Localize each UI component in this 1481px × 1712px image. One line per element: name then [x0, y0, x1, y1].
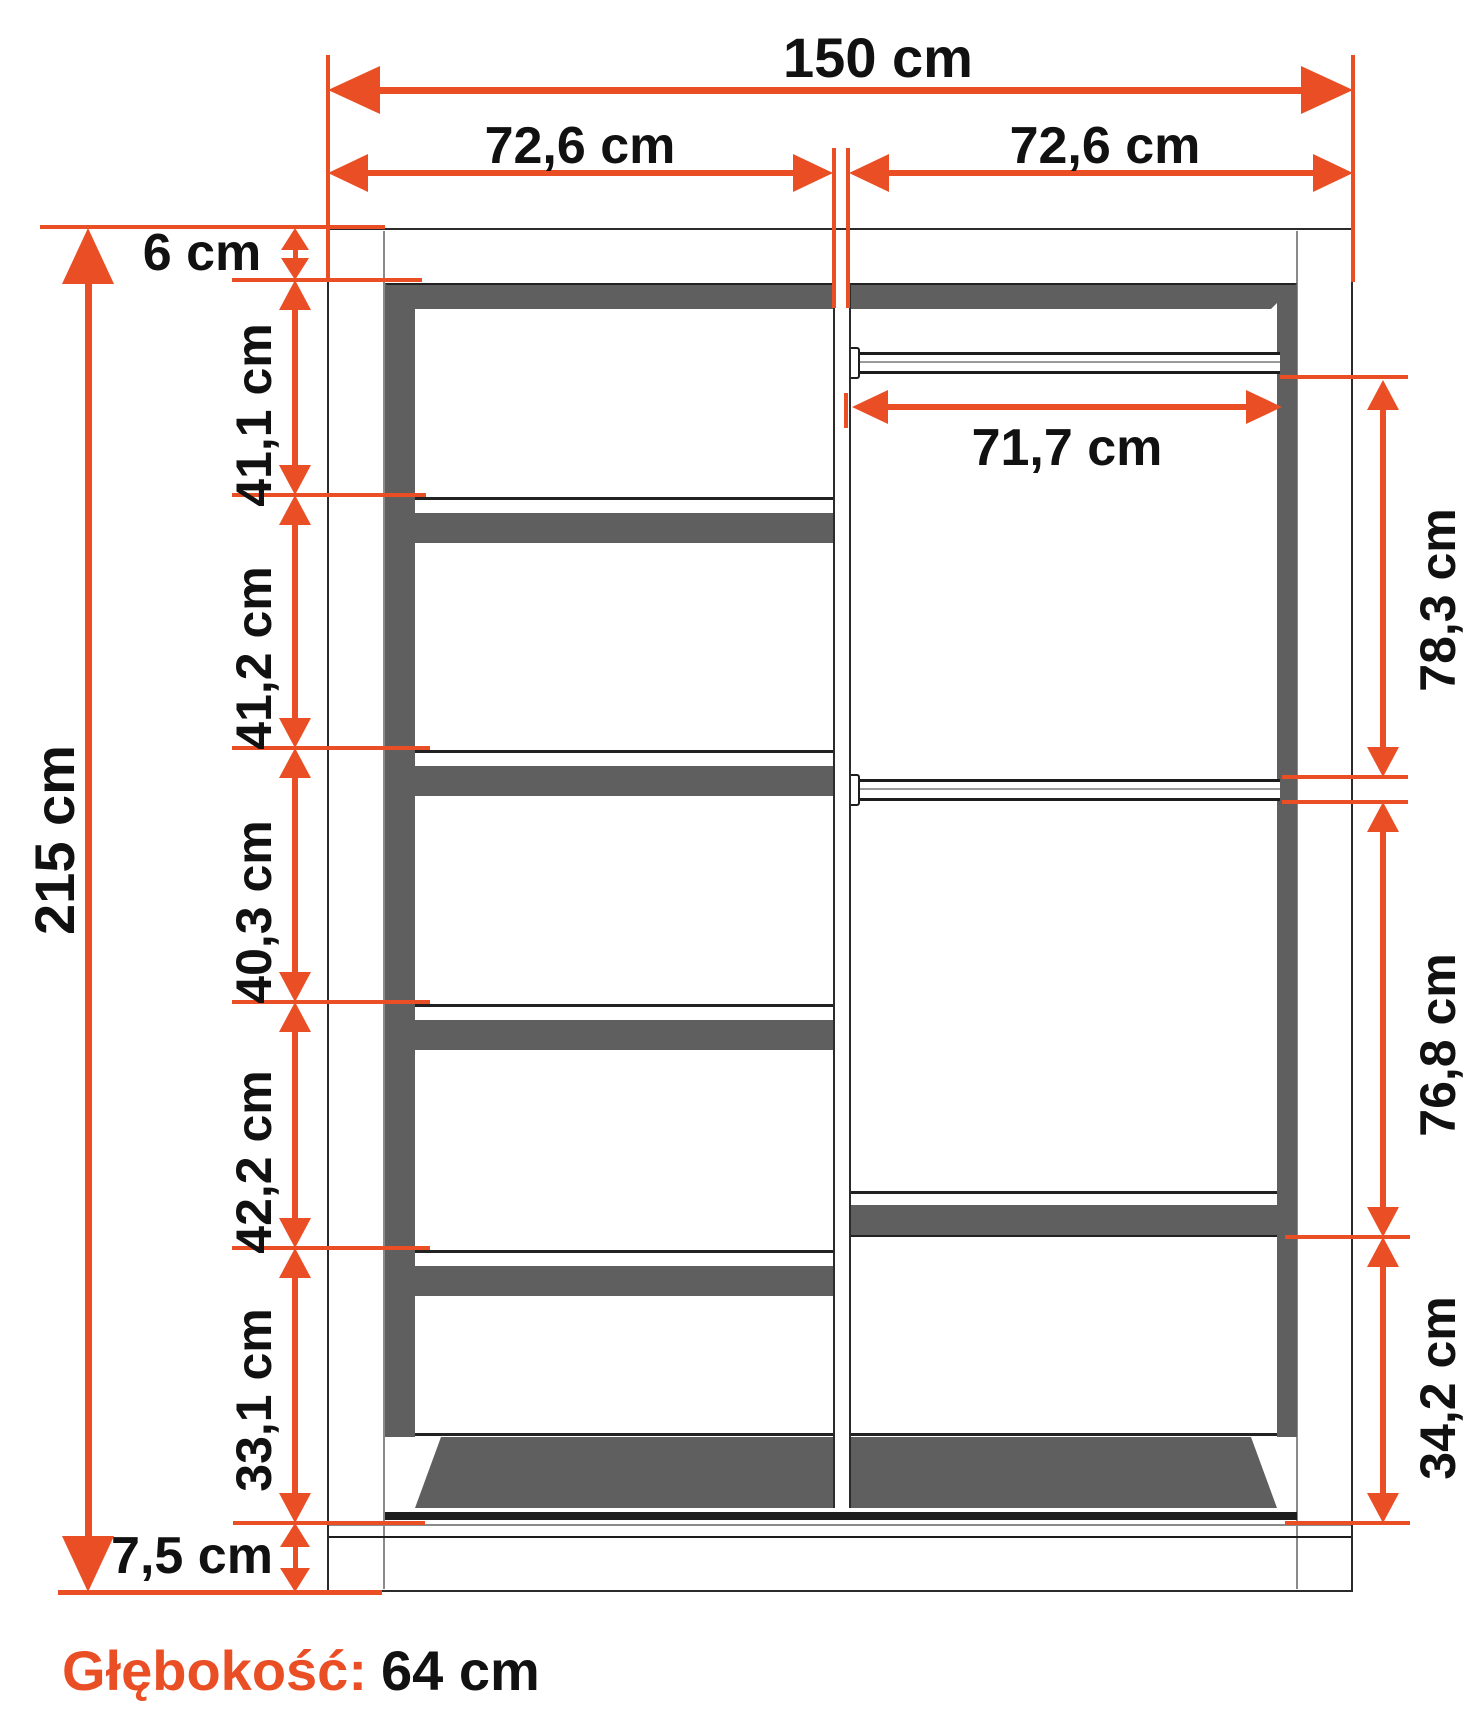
- label-top-panel: 6 cm: [143, 227, 262, 279]
- left-shelf-4-edge: [415, 1250, 833, 1253]
- dim-arrow-top-panel: [273, 228, 317, 280]
- ext-line-rail-top: [1280, 375, 1408, 379]
- clothes-rail-middle-highlight: [858, 788, 1280, 790]
- ext-line-left-bottom: [233, 1521, 425, 1525]
- label-left-compartment-2: 41,2 cm: [229, 566, 279, 749]
- ext-line-rail-left-end: [844, 393, 848, 428]
- plinth-front-bar: [385, 1512, 1297, 1520]
- label-left-compartment-1: 41,1 cm: [229, 323, 279, 506]
- label-left-compartment-5: 33,1 cm: [229, 1308, 279, 1491]
- label-right-compartment-bottom: 34,2 cm: [1413, 1296, 1463, 1479]
- wardrobe-dimension-diagram: 150 cm 72,6 cm 72,6 cm 6 cm 41,1 cm 41,2…: [0, 0, 1481, 1712]
- label-left-section-width: 72,6 cm: [485, 120, 676, 172]
- dim-arrow-right-compartment-middle: [1361, 802, 1405, 1237]
- clothes-rail-top: [858, 352, 1280, 374]
- label-plinth: 7,5 cm: [111, 1530, 273, 1582]
- clothes-rail-top-highlight: [858, 361, 1280, 363]
- dim-arrow-right-compartment-bottom: [1361, 1237, 1405, 1523]
- plinth-base-line: [329, 1536, 1351, 1538]
- label-left-compartment-4: 42,2 cm: [229, 1070, 279, 1253]
- label-total-width: 150 cm: [783, 30, 973, 86]
- left-shelf-2-edge: [415, 750, 833, 753]
- label-right-compartment-top: 78,3 cm: [1413, 508, 1463, 691]
- left-shelf-3-panel: [415, 1020, 833, 1050]
- left-shelf-1-panel: [415, 513, 833, 543]
- left-shelf-4-panel: [415, 1266, 833, 1296]
- depth-label: Głębokość:: [62, 1639, 367, 1702]
- label-right-compartment-middle: 76,8 cm: [1413, 953, 1463, 1136]
- clothes-rail-middle: [858, 779, 1280, 801]
- dim-arrow-right-compartment-top: [1361, 380, 1405, 777]
- label-total-height: 215 cm: [27, 745, 83, 935]
- right-shelf-panel: [851, 1205, 1277, 1237]
- center-divider-panel: [833, 283, 851, 1508]
- label-right-section-width: 72,6 cm: [1010, 120, 1201, 172]
- depth-value: 64 cm: [381, 1639, 540, 1702]
- plinth-top-line: [329, 1524, 1351, 1526]
- label-left-compartment-3: 40,3 cm: [229, 820, 279, 1003]
- left-shelf-2-panel: [415, 766, 833, 796]
- depth-note: Głębokość:64 cm: [62, 1643, 540, 1699]
- cabinet-left-wall-panel: [385, 283, 415, 1437]
- right-shelf-edge: [851, 1191, 1277, 1194]
- dim-arrow-plinth: [273, 1523, 317, 1592]
- cabinet-right-wall-panel: [1277, 283, 1297, 1437]
- left-shelf-3-edge: [415, 1004, 833, 1007]
- label-rail-width: 71,7 cm: [972, 422, 1163, 474]
- left-shelf-1-edge: [415, 497, 833, 500]
